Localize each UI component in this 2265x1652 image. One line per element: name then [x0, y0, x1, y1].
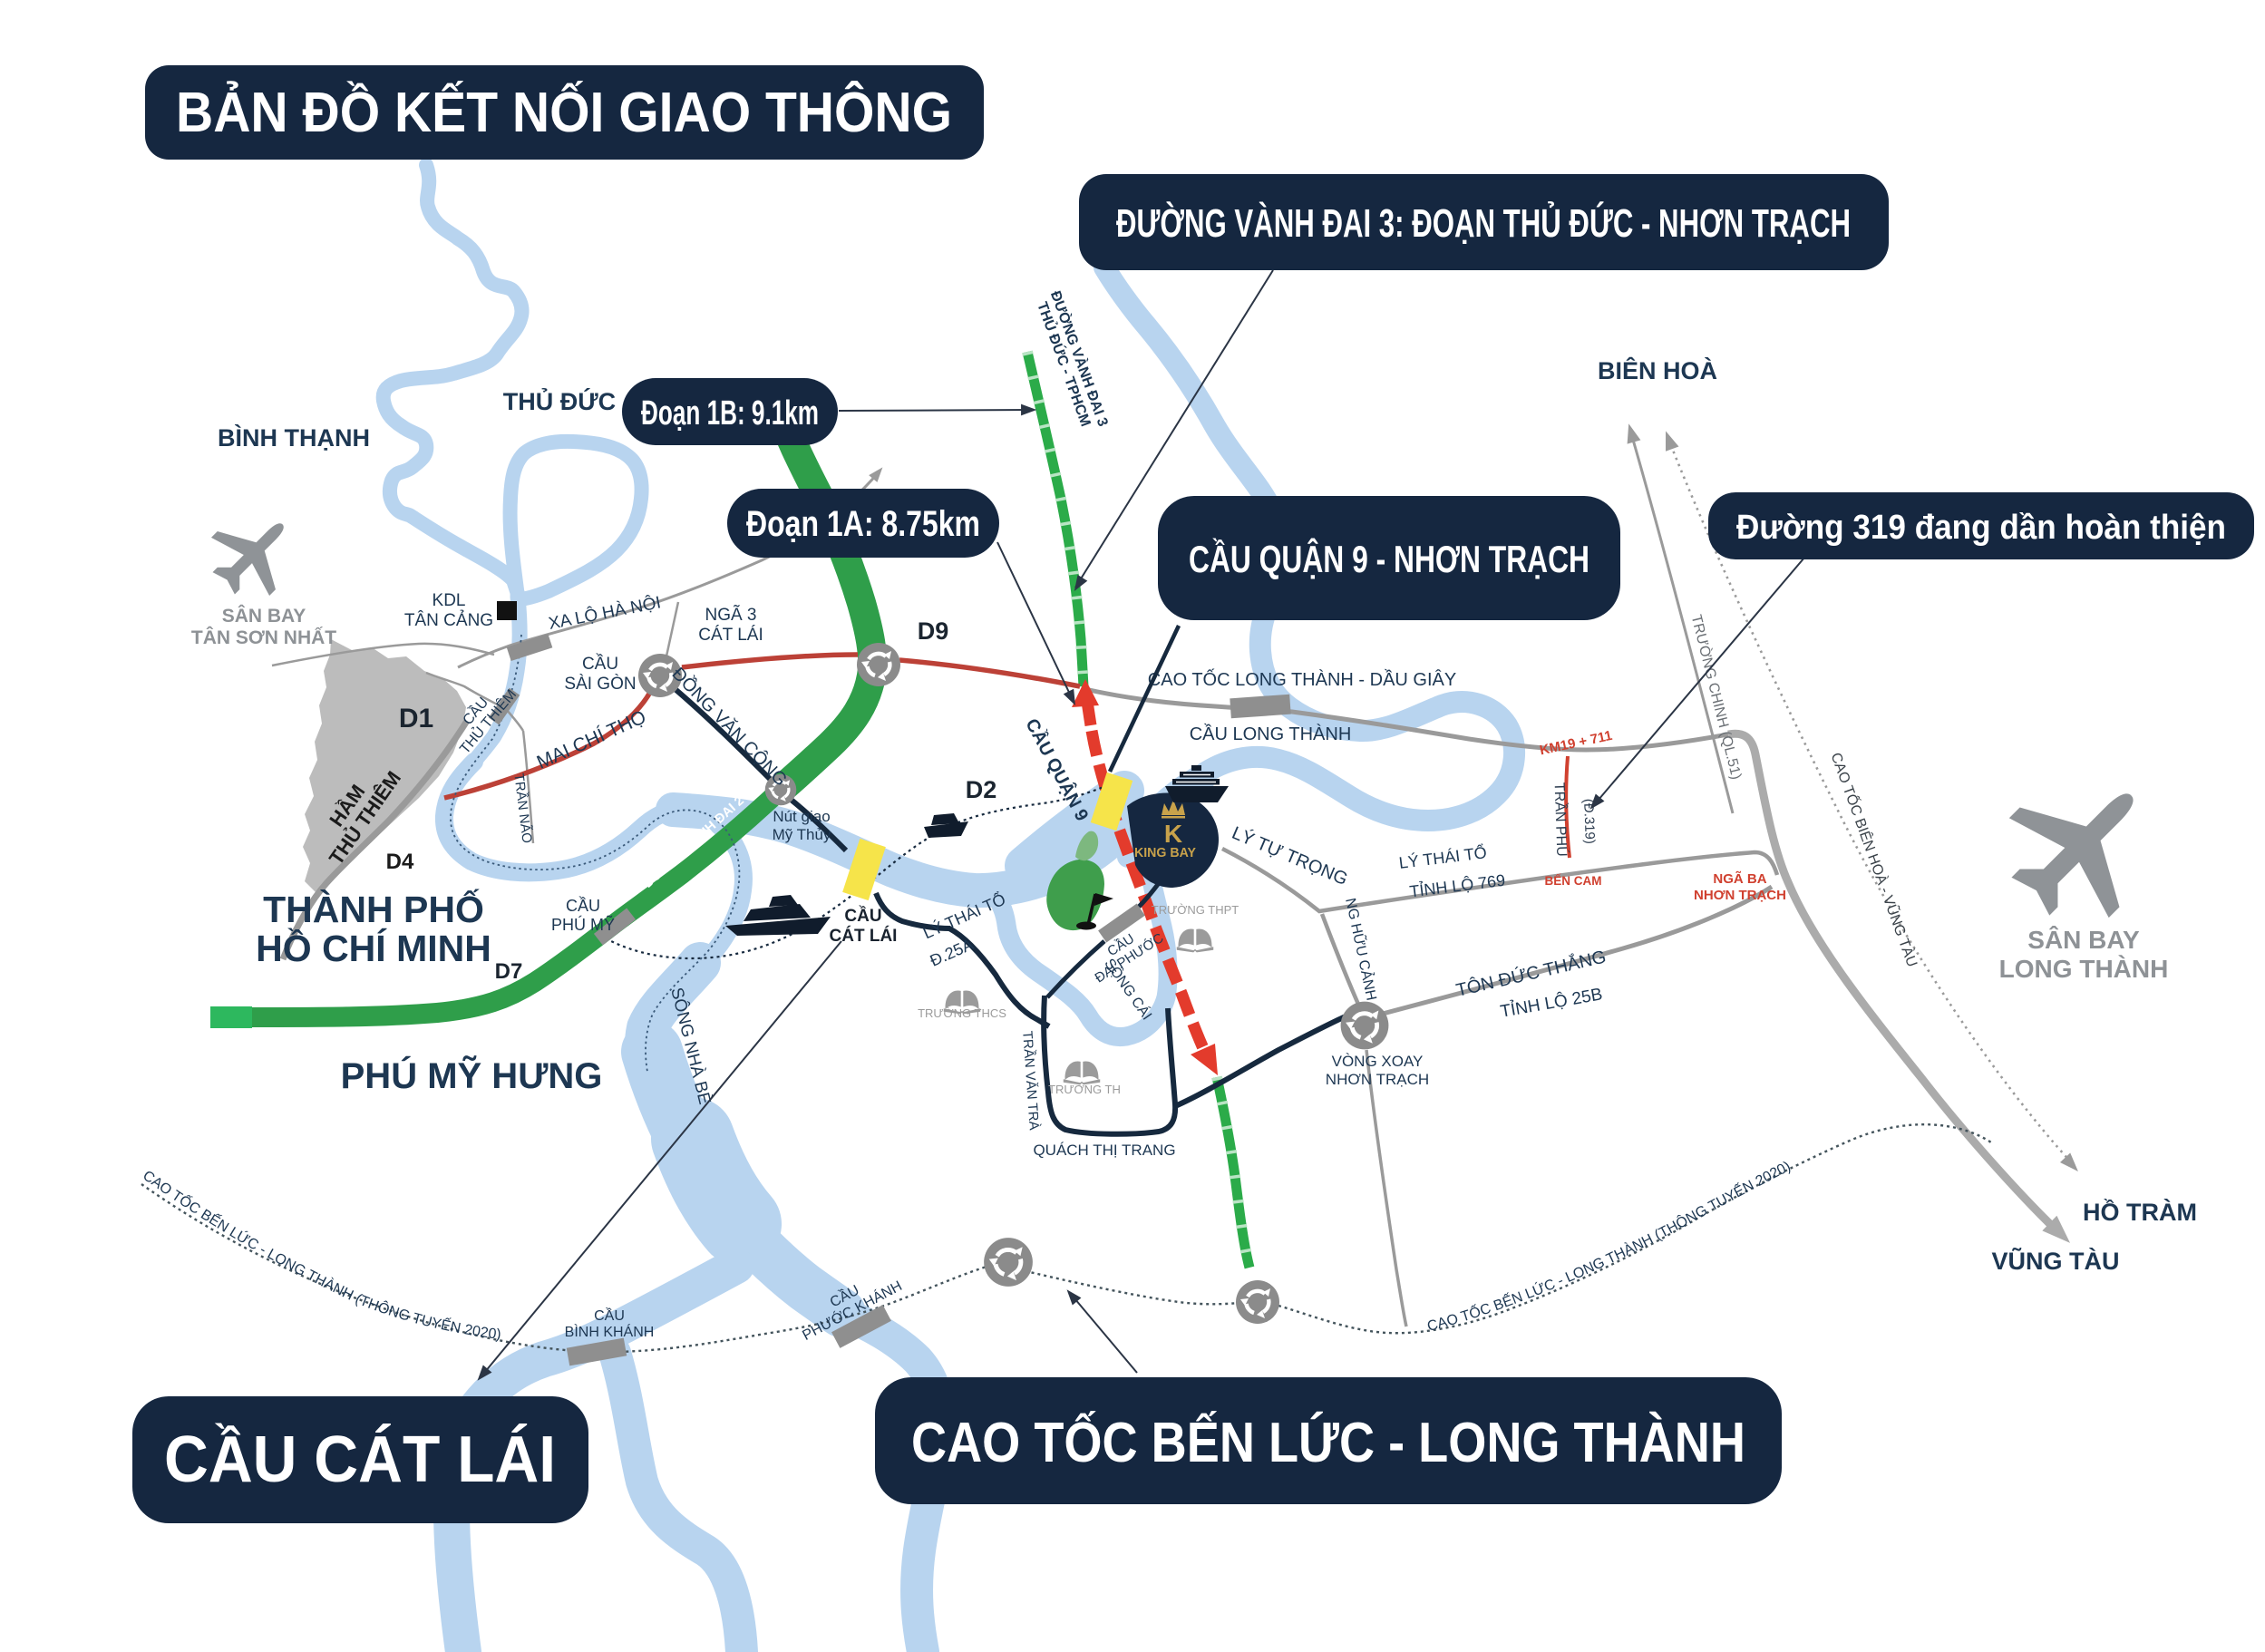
svg-text:CÁT LÁI: CÁT LÁI [698, 626, 763, 645]
svg-text:KING BAY: KING BAY [1134, 846, 1196, 860]
svg-text:D1: D1 [399, 704, 433, 734]
svg-text:BẾN CAM: BẾN CAM [1545, 874, 1602, 888]
svg-text:TRƯỜNG THCS: TRƯỜNG THCS [918, 1006, 1006, 1020]
svg-text:THÀNH PHỐ: THÀNH PHỐ [263, 889, 484, 930]
svg-text:D9: D9 [918, 617, 949, 645]
svg-text:D2: D2 [966, 776, 997, 803]
svg-text:NHƠN TRẠCH: NHƠN TRẠCH [1326, 1071, 1429, 1088]
svg-text:NGÃ BA: NGÃ BA [1713, 870, 1766, 887]
svg-text:TÂN CẢNG: TÂN CẢNG [404, 610, 493, 630]
svg-text:THỦ ĐỨC: THỦ ĐỨC [503, 386, 616, 415]
svg-text:TÂN SƠN NHẤT: TÂN SƠN NHẤT [191, 627, 336, 648]
svg-text:NHƠN TRẠCH: NHƠN TRẠCH [1694, 888, 1786, 903]
svg-text:BÌNH KHÁNH: BÌNH KHÁNH [565, 1323, 655, 1340]
svg-text:K: K [1164, 820, 1182, 848]
svg-text:CẦU LONG THÀNH: CẦU LONG THÀNH [1190, 724, 1352, 744]
svg-text:CẦU: CẦU [594, 1307, 625, 1324]
svg-text:CAO TỐC BẾN LỨC - LONG THÀNH: CAO TỐC BẾN LỨC - LONG THÀNH [911, 1412, 1745, 1474]
svg-text:TRƯỜNG THPT: TRƯỜNG THPT [1152, 903, 1239, 917]
svg-text:ĐƯỜNG VÀNH ĐAI 3: ĐOẠN THỦ ĐỨC: ĐƯỜNG VÀNH ĐAI 3: ĐOẠN THỦ ĐỨC - NHƠN TR… [1116, 199, 1851, 246]
svg-text:Đoạn 1B: 9.1km: Đoạn 1B: 9.1km [641, 394, 819, 432]
svg-text:CẦU: CẦU [582, 654, 618, 674]
svg-text:VŨNG TÀU: VŨNG TÀU [1992, 1247, 2120, 1275]
svg-text:TRƯỜNG TH: TRƯỜNG TH [1048, 1083, 1121, 1096]
svg-text:Đường 319 đang dần hoàn thiện: Đường 319 đang dần hoàn thiện [1736, 509, 2226, 547]
svg-text:SÀI GÒN: SÀI GÒN [564, 674, 636, 694]
svg-text:CẦU CÁT LÁI: CẦU CÁT LÁI [164, 1423, 556, 1496]
svg-text:LONG THÀNH: LONG THÀNH [1999, 955, 2169, 983]
svg-text:VÒNG XOAY: VÒNG XOAY [1332, 1053, 1424, 1070]
svg-text:BÌNH THẠNH: BÌNH THẠNH [218, 423, 370, 452]
svg-text:SÂN BAY: SÂN BAY [2027, 926, 2140, 954]
svg-text:PHÚ MỸ: PHÚ MỸ [551, 915, 615, 934]
svg-text:BẢN ĐỒ KẾT NỐI GIAO THÔNG: BẢN ĐỒ KẾT NỐI GIAO THÔNG [176, 82, 952, 144]
svg-text:Đoạn 1A: 8.75km: Đoạn 1A: 8.75km [746, 504, 980, 544]
svg-text:CAO TỐC LONG THÀNH - DẦU GIÂY: CAO TỐC LONG THÀNH - DẦU GIÂY [1148, 668, 1456, 690]
svg-text:BIÊN HOÀ: BIÊN HOÀ [1598, 356, 1717, 384]
svg-text:NGÃ 3: NGÃ 3 [705, 605, 756, 625]
svg-text:PHÚ MỸ HƯNG: PHÚ MỸ HƯNG [341, 1054, 603, 1096]
svg-text:CẦU: CẦU [566, 896, 600, 915]
svg-text:QUÁCH THỊ TRANG: QUÁCH THỊ TRANG [1033, 1142, 1175, 1159]
svg-text:Mỹ Thủy: Mỹ Thủy [773, 826, 831, 843]
svg-text:CẦU: CẦU [844, 906, 881, 926]
svg-text:D7: D7 [495, 959, 523, 984]
svg-text:D4: D4 [386, 850, 414, 874]
svg-text:CẦU QUẬN 9 - NHƠN TRẠCH: CẦU QUẬN 9 - NHƠN TRẠCH [1189, 537, 1589, 580]
svg-text:HỒ TRÀM: HỒ TRÀM [2083, 1198, 2197, 1226]
svg-text:KDL: KDL [433, 591, 466, 610]
svg-text:SÂN BAY: SÂN BAY [222, 605, 306, 627]
svg-text:Nút giao: Nút giao [773, 808, 830, 825]
svg-text:HỒ CHÍ MINH: HỒ CHÍ MINH [256, 928, 491, 969]
